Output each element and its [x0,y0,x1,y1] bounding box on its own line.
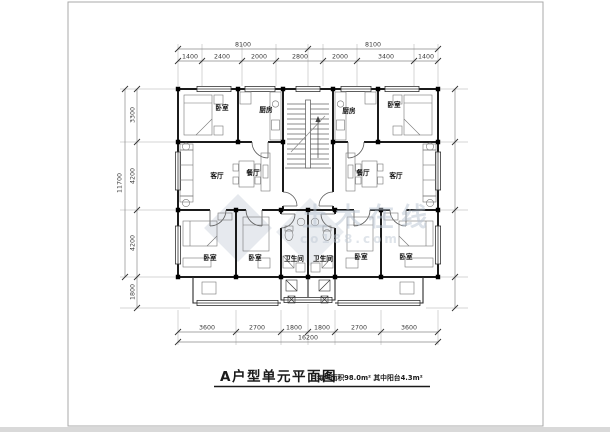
dim-top-seg-0: 1400 [182,54,198,61]
dim-bottom-seg-5: 3600 [401,325,417,332]
dim-bottom-seg-2: 1800 [286,325,302,332]
room-label-bedroom-s-right: 卧室 [354,252,368,261]
dim-left-seg-1: 4200 [130,168,137,184]
dim-top-seg-5: 3400 [378,54,394,61]
dim-top-overall-right: 8100 [365,42,381,49]
plan-drawing: 土木在线 co188.com 8100 8100 1400 2400 2000 … [0,0,610,432]
dim-left-seg-3: 1800 [130,284,137,300]
room-label-dining-left: 餐厅 [246,168,260,177]
watermark-brand: 土木在线 [302,203,434,233]
dim-bottom-overall: 16200 [298,335,318,342]
room-label-bath-right: 卫生间 [313,254,333,263]
dim-top-seg-1: 2400 [214,54,230,61]
dim-top-seg-2: 2000 [251,54,267,61]
room-label-bedroom-se-right: 卧室 [399,252,413,261]
area-note: 每户面积98.0m² 其中阳台4.3m² [317,373,423,382]
room-label-bath-left: 卫生间 [284,254,304,263]
room-label-kitchen-left: 厨房 [259,105,273,114]
dim-top-seg-6: 1400 [418,54,434,61]
room-label-dining-right: 餐厅 [356,168,370,177]
room-label-living-left: 客厅 [209,171,224,180]
dim-left-overall: 11700 [117,173,124,193]
dim-left-seg-2: 4200 [130,235,137,251]
room-label-bedroom-sw-left: 卧室 [203,253,217,262]
room-label-bedroom-s-left: 卧室 [248,253,262,262]
dim-bottom-seg-1: 2700 [249,325,265,332]
bottom-edge-strip [0,427,610,432]
room-label-kitchen-right: 厨房 [342,106,356,115]
dim-bottom-seg-0: 3600 [199,325,215,332]
room-label-bedroom-top-left: 卧室 [215,103,229,112]
dim-top-overall-left: 8100 [235,42,251,49]
dim-left-seg-0: 3300 [130,107,137,123]
stairs [285,100,331,168]
dim-bottom-seg-4: 2700 [351,325,367,332]
room-label-bedroom-top-right: 卧室 [387,100,401,109]
dim-bottom-seg-3: 1800 [314,325,330,332]
watermark-site: co188.com [300,232,400,246]
dim-top-seg-4: 2000 [332,54,348,61]
floor-plan-canvas: 土木在线 co188.com 8100 8100 1400 2400 2000 … [0,0,610,432]
dim-top-seg-3: 2800 [292,54,308,61]
title-block: A户型单元平面图 每户面积98.0m² 其中阳台4.3m² [214,368,430,387]
watermark: 土木在线 co188.com [300,203,434,246]
room-label-living-right: 客厅 [388,171,403,180]
